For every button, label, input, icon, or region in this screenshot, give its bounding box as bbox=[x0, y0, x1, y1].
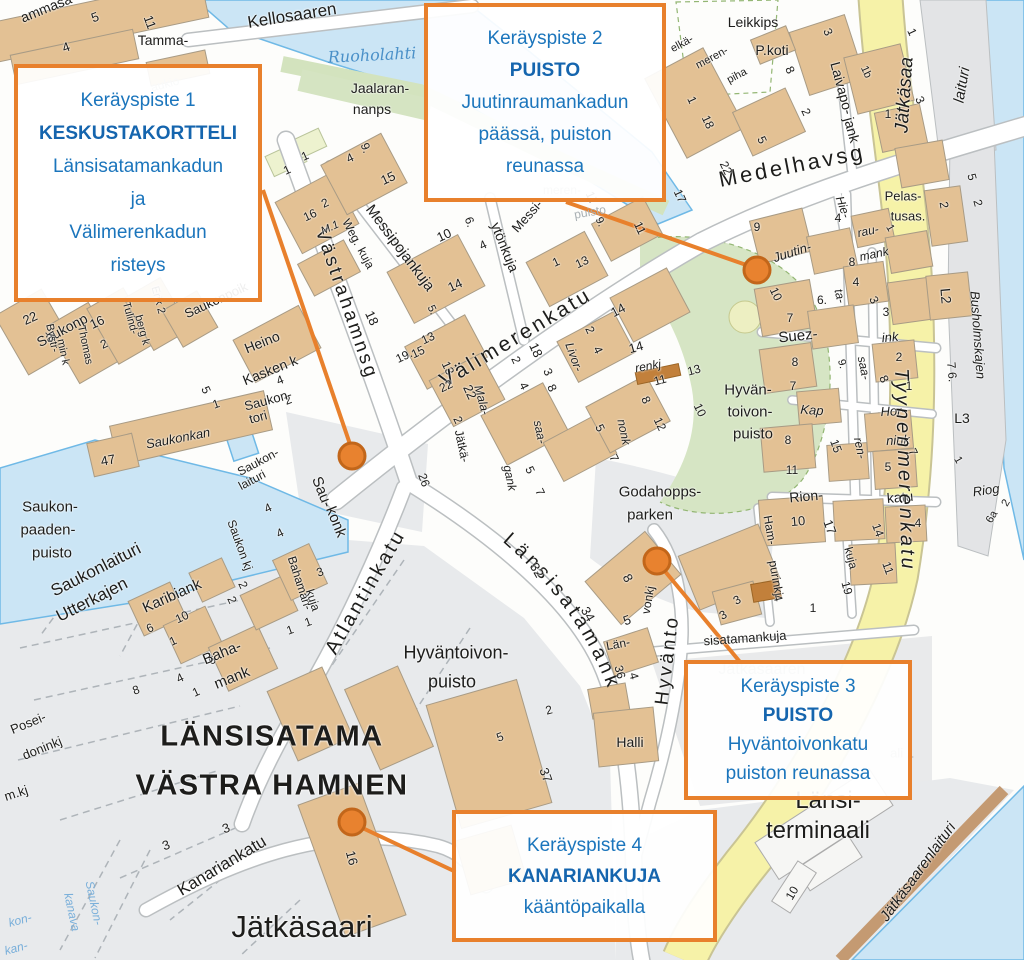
building-block bbox=[758, 496, 825, 546]
building-block bbox=[885, 505, 927, 543]
callout-line: Välimerenkadun bbox=[18, 216, 258, 249]
collection-point-marker bbox=[339, 809, 365, 835]
building-block bbox=[872, 340, 918, 382]
building-block bbox=[754, 280, 817, 337]
building-block bbox=[885, 231, 933, 274]
callout-line: Juutinraumankadun bbox=[428, 87, 662, 119]
callout-line: Länsisatamankadun bbox=[18, 150, 258, 183]
collection-point-marker bbox=[644, 548, 670, 574]
callout-kerayspiste-1: Keräyspiste 1KESKUSTAKORTTELILänsisatama… bbox=[14, 64, 262, 302]
callout-line: Hyväntoivonkatu bbox=[688, 730, 908, 759]
callout-line: Keräyspiste 4 bbox=[456, 830, 713, 861]
building-block bbox=[760, 424, 816, 472]
callout-line: Keräyspiste 2 bbox=[428, 23, 662, 55]
callout-line: Keräyspiste 3 bbox=[688, 672, 908, 701]
building-block bbox=[924, 186, 967, 246]
callout-line: ja bbox=[18, 183, 258, 216]
building-block bbox=[843, 261, 888, 306]
collection-point-marker bbox=[339, 443, 365, 469]
callout-kerayspiste-2: Keräyspiste 2PUISTOJuutinraumankadunpääs… bbox=[424, 3, 666, 202]
building-block bbox=[759, 343, 817, 394]
map-screenshot: Länsisatamank KellosaarenTamma-ammasa541… bbox=[0, 0, 1024, 960]
callout-line: reunassa bbox=[428, 151, 662, 183]
callout-line: KESKUSTAKORTTELI bbox=[18, 117, 258, 150]
building-block bbox=[926, 272, 972, 320]
callout-line: puiston reunassa bbox=[688, 759, 908, 788]
callout-line: päässä, puiston bbox=[428, 119, 662, 151]
collection-point-marker bbox=[744, 257, 770, 283]
callout-line: PUISTO bbox=[428, 55, 662, 87]
building-block bbox=[833, 499, 885, 542]
building-block bbox=[827, 443, 869, 482]
callout-line: KANARIANKUJA bbox=[456, 861, 713, 892]
building-block bbox=[797, 388, 842, 426]
callout-kerayspiste-3: Keräyspiste 3PUISTOHyväntoivonkatupuisto… bbox=[684, 660, 912, 800]
building-block bbox=[887, 277, 932, 324]
building-block bbox=[808, 305, 859, 349]
building-block bbox=[895, 140, 949, 188]
callout-line: PUISTO bbox=[688, 701, 908, 730]
building-block bbox=[593, 707, 658, 767]
callout-kerayspiste-4: Keräyspiste 4KANARIANKUJAkääntöpaikalla bbox=[452, 810, 717, 942]
building-block bbox=[873, 449, 918, 490]
building-block bbox=[864, 410, 913, 452]
callout-line: kääntöpaikalla bbox=[456, 892, 713, 923]
building-block bbox=[849, 543, 897, 585]
callout-line: Keräyspiste 1 bbox=[18, 84, 258, 117]
callout-line: risteys bbox=[18, 249, 258, 282]
